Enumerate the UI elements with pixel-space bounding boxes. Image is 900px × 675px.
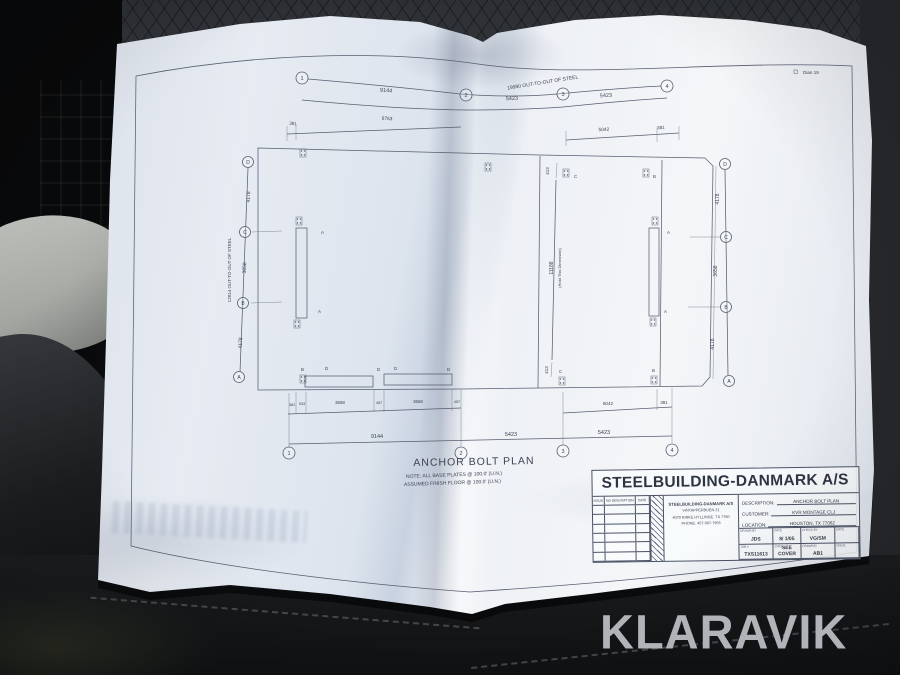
dim-label: 3658 xyxy=(413,399,423,404)
date-cell: DATE 8/ 1/05 xyxy=(773,528,801,544)
dim-label: 9144 xyxy=(371,434,383,440)
sheet-corner-note: Dian 19 xyxy=(794,70,819,75)
cell-label: ISSUE xyxy=(836,543,845,547)
company-address-block: STEELBUILDING-DANMARK A/S VINTAPPERBUEN … xyxy=(664,495,740,561)
cell-label: DATE xyxy=(836,527,844,531)
dim-label: 5042 xyxy=(598,127,609,134)
dim-label: 381 xyxy=(660,400,668,405)
detail-mark: D xyxy=(447,367,450,372)
hatch-divider xyxy=(651,496,665,561)
dim-label: 3658 xyxy=(242,262,248,274)
detail-mark-labels: A A A A C B B D D D D C B xyxy=(301,174,670,374)
detail-mark: C xyxy=(574,174,577,179)
dim-label: 381 xyxy=(289,121,297,126)
drawing-number-cell: DRAWING AB1 xyxy=(801,543,835,559)
top-total-dimension: 19990 OUT-TO-OUT OF STEEL xyxy=(507,74,579,91)
right-dimension-lines xyxy=(688,166,728,379)
grid-bubbles-right: D C B A xyxy=(720,159,735,387)
dim-label: 457 xyxy=(454,400,460,404)
dim-label: 5423 xyxy=(598,430,610,436)
dim-label: 413 xyxy=(545,167,550,175)
grid-bubbles-top: 1 2 3 4 xyxy=(296,72,673,101)
dim-label: 5423 xyxy=(505,432,517,438)
dim-label: 4178 xyxy=(715,193,721,204)
dim-label: 8763 xyxy=(382,116,393,123)
dim-label: 381 xyxy=(657,125,665,130)
cell-value: 8/ 1/05 xyxy=(773,535,800,541)
drawn-by-cell: DRAWN BY JDS xyxy=(739,528,773,544)
revision-row xyxy=(594,552,651,562)
anchor-bolt-plan-drawing: Dian 19 19990 OUT-TO-OUT OF STEEL 9144 5… xyxy=(0,0,900,675)
photo-of-anchor-bolt-plan: Dian 19 19990 OUT-TO-OUT OF STEEL 9144 5… xyxy=(0,0,900,675)
plan-note: ASSUMED FINISH FLOOR @ 100.0' (U.N.) xyxy=(404,479,502,488)
cell-label: DRAWN BY xyxy=(740,529,756,533)
detail-mark: B xyxy=(652,368,655,373)
cell-label: DATE xyxy=(774,528,782,532)
grid-bubble-label: D xyxy=(723,162,727,168)
detail-mark: D xyxy=(377,367,380,372)
dim-label: 4178 xyxy=(710,338,716,349)
checkbox-icon xyxy=(794,70,797,73)
title-block-company-name: STEELBUILDING-DANMARK A/S xyxy=(592,467,858,497)
job-number-cell: JOB # TXS11613 xyxy=(739,544,773,560)
revision-col-header: ISSUE xyxy=(593,497,605,505)
anchor-bolt-detail-icons xyxy=(294,149,658,385)
grid-bubble-label: 4 xyxy=(670,448,673,454)
signature-cells: DRAWN BY JDS DATE 8/ 1/05 CHECK BY VG/SM… xyxy=(739,526,859,560)
dim-label: 533 xyxy=(299,402,305,406)
revision-col-header: DATE xyxy=(636,496,650,504)
dim-label: 4178 xyxy=(246,191,252,203)
cell-value: JDS xyxy=(739,536,772,542)
cell-value: VG/SM xyxy=(801,535,834,541)
bottom-dimension-lines xyxy=(288,388,672,448)
top-dimension-lines xyxy=(287,79,679,146)
dim-label: 457 xyxy=(376,401,382,405)
issue-cell: ISSUE xyxy=(835,543,859,559)
cell-label: JOB # xyxy=(740,544,748,548)
cell-value: AB1 xyxy=(802,550,835,556)
detail-mark: A xyxy=(321,230,324,235)
building-outline xyxy=(258,148,713,390)
grid-bubble-label: 3 xyxy=(561,92,564,98)
revision-table: ISSUE NO DESCRIPTION DATE xyxy=(593,496,652,562)
dim-label: 3658 xyxy=(335,400,345,405)
detail-mark: A xyxy=(318,309,321,314)
cell-label: CHECK BY xyxy=(802,528,817,532)
cell-value: SEE COVER xyxy=(773,545,800,557)
grid-bubble-label: 1 xyxy=(300,76,303,82)
grid-bubble-label: C xyxy=(724,235,728,241)
company-phone: PHONE: 457-007-7955 xyxy=(664,520,738,527)
dim-label: 3658 xyxy=(713,265,719,276)
dim-label: 11188 xyxy=(549,261,555,274)
detail-mark: D xyxy=(394,366,397,371)
klaravik-watermark: KLARAVIK xyxy=(600,607,847,655)
dim-label: 5423 xyxy=(600,93,613,100)
dim-label: 413 xyxy=(544,366,549,374)
date-cell: DATE xyxy=(835,527,859,543)
cell-label: DRAWING xyxy=(802,543,816,547)
detail-mark: B xyxy=(301,367,304,372)
drawing-info-fields: DESCRIPTION: ANCHOR BOLT PLAN CUSTOMER: … xyxy=(739,493,860,560)
title-block: STEELBUILDING-DANMARK A/S ISSUE NO DESCR… xyxy=(591,466,860,563)
detail-mark: C xyxy=(559,369,562,374)
dim-label: 4178 xyxy=(238,337,244,349)
revision-col-header: NO DESCRIPTION xyxy=(605,496,636,504)
corner-note-label: Dian 19 xyxy=(803,70,819,75)
grid-bubble-label: D xyxy=(246,160,250,166)
grid-bubble-label: C xyxy=(243,230,247,236)
dim-label: 9144 xyxy=(380,88,393,95)
dim-label: 5042 xyxy=(603,401,614,406)
plan-title: ANCHOR BOLT PLAN xyxy=(413,455,534,469)
dim-note: (Hold This Dimension) xyxy=(557,248,562,288)
check-by-cell: CHECK BY VG/SM xyxy=(801,527,835,543)
grid-bubble-label: 4 xyxy=(665,84,668,90)
chkd-cell: CHKD SEE COVER xyxy=(773,543,801,559)
detail-mark: A xyxy=(667,230,670,235)
detail-mark: D xyxy=(325,366,328,371)
grid-bubble-label: 2 xyxy=(464,93,467,99)
grid-bubble-label: 1 xyxy=(287,451,290,457)
cell-value: TXS11613 xyxy=(740,551,773,557)
detail-mark: A xyxy=(664,309,667,314)
grid-bubble-label: 3 xyxy=(561,449,564,455)
dim-label: 381 xyxy=(289,403,295,407)
dim-label: 5423 xyxy=(506,96,518,102)
detail-mark: B xyxy=(653,174,656,179)
left-total-dimension: 12014 OUT-TO-OUT OF STEEL xyxy=(227,237,232,302)
